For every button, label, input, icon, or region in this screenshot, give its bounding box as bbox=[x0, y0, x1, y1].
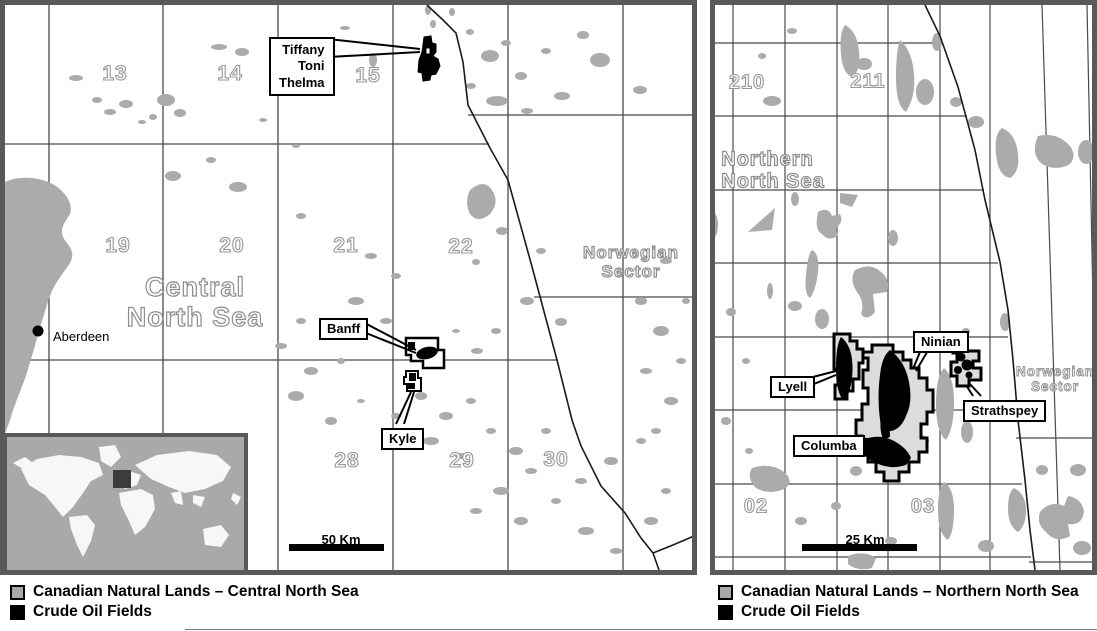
kyle-label-box: Kyle bbox=[381, 428, 424, 450]
norwegian-sector-label-left: Norwegian Sector bbox=[583, 243, 679, 281]
quadrant-13: 13 bbox=[102, 62, 127, 86]
central-north-sea-label: Central North Sea bbox=[127, 272, 264, 332]
page-rule-line bbox=[185, 629, 1097, 630]
quadrant-20: 20 bbox=[219, 234, 244, 258]
black-swatch-icon bbox=[10, 605, 25, 620]
scale-label-50km: 50 Km bbox=[321, 532, 360, 547]
central-north-sea-map-panel: 13 14 15 19 20 21 22 28 29 30 Central No… bbox=[0, 0, 697, 575]
quadrant-211: 211 bbox=[850, 71, 885, 94]
gray-swatch-icon bbox=[10, 585, 25, 600]
tiffany-field-shape bbox=[418, 36, 440, 81]
legend-northern-oil-fields: Crude Oil Fields bbox=[718, 603, 860, 621]
banff-field-shape bbox=[406, 338, 444, 368]
quadrant-29: 29 bbox=[449, 449, 474, 473]
quadrant-28: 28 bbox=[334, 449, 359, 473]
banff-label-box: Banff bbox=[319, 318, 368, 340]
legend-central-oil-fields: Crude Oil Fields bbox=[10, 603, 152, 621]
quadrant-30: 30 bbox=[543, 448, 568, 472]
kyle-field-shape bbox=[404, 371, 421, 391]
lyell-label-box: Lyell bbox=[770, 376, 815, 398]
north-sea-map-figure: { "colors": { "panel_border": "#58595b",… bbox=[0, 0, 1097, 631]
aberdeen-dot bbox=[33, 326, 44, 337]
world-map-graphic bbox=[7, 437, 244, 571]
quadrant-21: 21 bbox=[333, 234, 358, 258]
strathspey-label-box: Strathspey bbox=[963, 400, 1046, 422]
aberdeen-label: Aberdeen bbox=[53, 329, 109, 344]
legend-label: Crude Oil Fields bbox=[33, 603, 152, 621]
norwegian-sector-label-right: Norwegian Sector bbox=[1016, 364, 1094, 394]
world-inset-map bbox=[3, 433, 248, 575]
tiffany-toni-thelma-label-box: Tiffany Toni Thelma bbox=[269, 37, 335, 96]
quadrant-15: 15 bbox=[355, 64, 380, 88]
inset-location-marker bbox=[113, 470, 131, 488]
legend-northern-natural-lands: Canadian Natural Lands – Northern North … bbox=[718, 583, 1079, 601]
quadrant-14: 14 bbox=[217, 62, 242, 86]
northern-map-graphics bbox=[715, 5, 1092, 570]
northern-north-sea-label: Northern North Sea bbox=[721, 149, 824, 194]
quadrant-22: 22 bbox=[448, 235, 473, 259]
kyle-pointer-lines bbox=[396, 392, 414, 424]
columba-label-box: Columba bbox=[793, 435, 865, 457]
black-swatch-icon bbox=[718, 605, 733, 620]
quadrant-19: 19 bbox=[105, 234, 130, 258]
norwegian-boundary-line bbox=[427, 5, 692, 570]
legend-label: Canadian Natural Lands – Northern North … bbox=[741, 583, 1079, 601]
northern-north-sea-map-panel: 210 211 02 03 Northern North Sea Norwegi… bbox=[710, 0, 1097, 575]
tiffany-pointer-lines bbox=[328, 39, 420, 57]
scotland-coastline bbox=[5, 178, 72, 434]
quadrant-210: 210 bbox=[729, 72, 765, 95]
norwegian-boundary-line bbox=[925, 5, 1035, 570]
gray-swatch-icon bbox=[718, 585, 733, 600]
quadrant-02: 02 bbox=[744, 496, 768, 519]
legend-label: Canadian Natural Lands – Central North S… bbox=[33, 583, 359, 601]
ninian-label-box: Ninian bbox=[913, 331, 969, 353]
legend-central-natural-lands: Canadian Natural Lands – Central North S… bbox=[10, 583, 359, 601]
legend-label: Crude Oil Fields bbox=[741, 603, 860, 621]
natural-lands-blobs bbox=[715, 25, 1092, 569]
quadrant-03: 03 bbox=[911, 496, 935, 519]
scale-label-25km: 25 Km bbox=[845, 532, 884, 547]
